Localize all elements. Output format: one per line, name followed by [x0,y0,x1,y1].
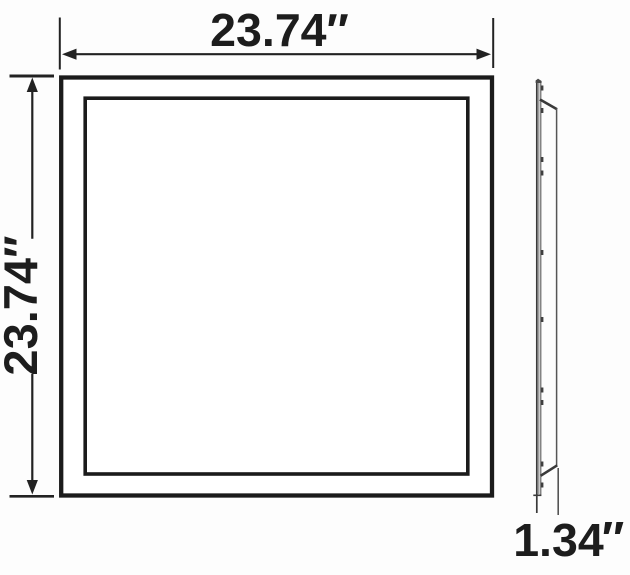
svg-text:″: ″ [602,512,625,565]
svg-text:23.74″: 23.74″ [210,4,349,56]
svg-text:23.74″: 23.74″ [0,235,47,375]
svg-text:1.34: 1.34 [513,514,604,566]
